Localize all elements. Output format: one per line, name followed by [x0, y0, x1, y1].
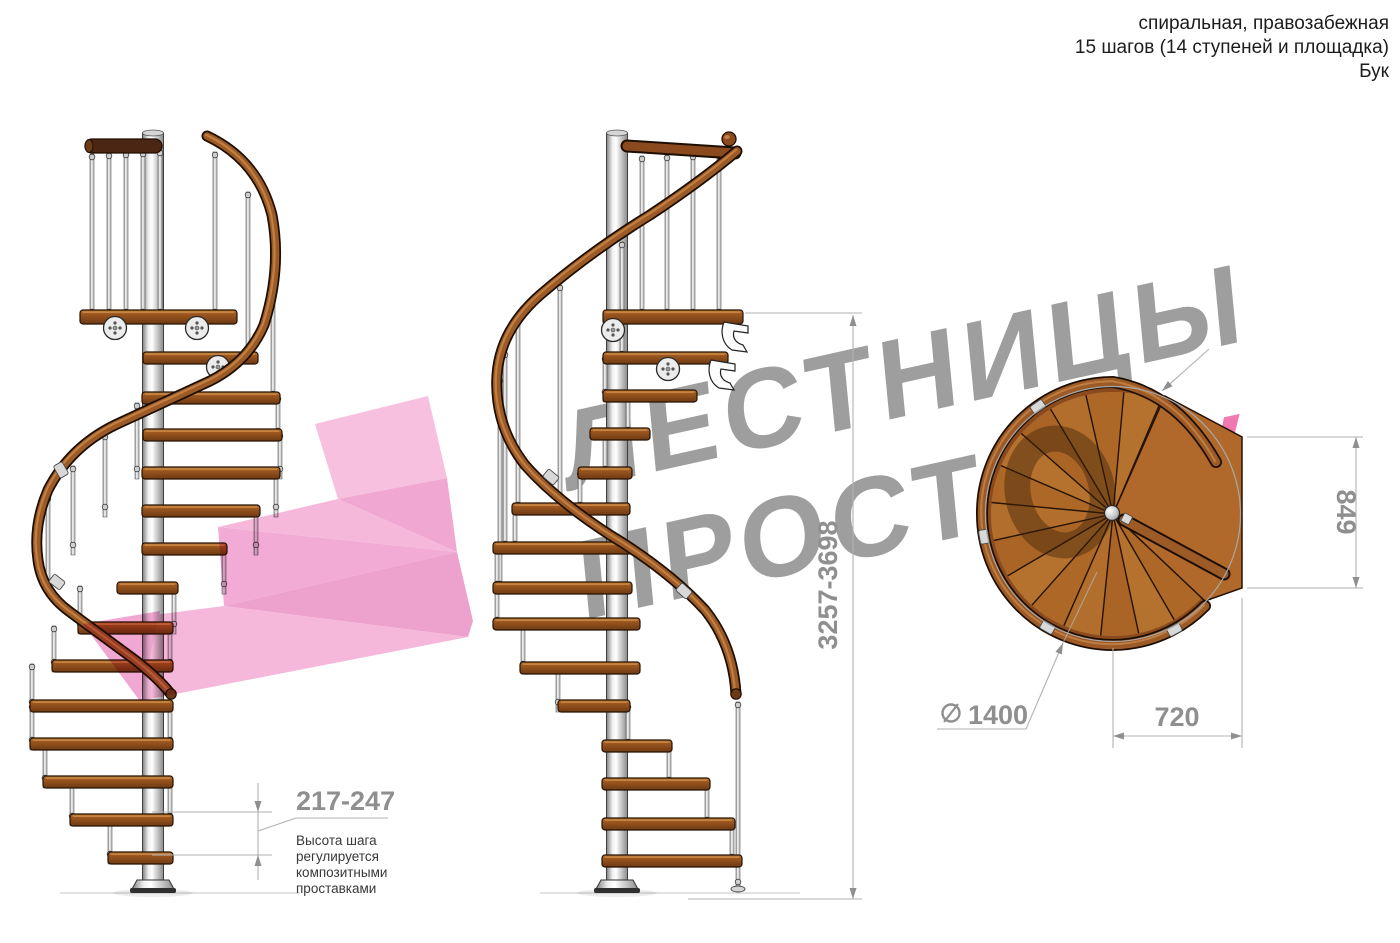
plan-hub	[1105, 506, 1120, 521]
title-block: спиральная, правозабежная 15 шагов (14 с…	[1075, 12, 1389, 84]
steps-count-label: 15 шагов (14 ступеней и площадка)	[1075, 36, 1389, 60]
stair-type-label: спиральная, правозабежная	[1075, 12, 1389, 36]
staircase-plan-view	[0, 0, 1400, 943]
drawing-canvas: ЛЕСТНИЦЫ ПРОСТО.ру	[0, 0, 1400, 943]
material-label: Бук	[1075, 60, 1389, 84]
